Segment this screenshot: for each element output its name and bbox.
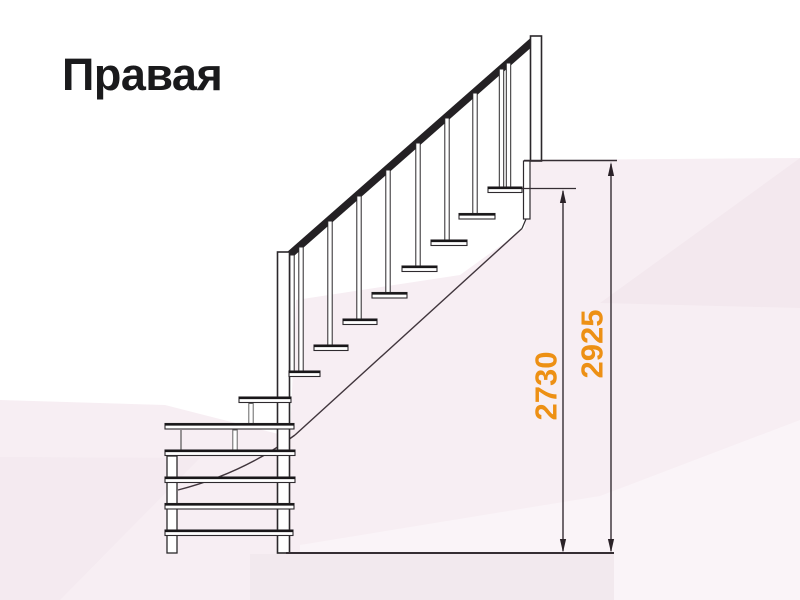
top-landing-post <box>531 36 542 161</box>
dimension-value-2730: 2730 <box>531 352 562 421</box>
page-title: Правая <box>62 52 222 97</box>
handrail <box>286 40 534 258</box>
landing-edge <box>522 161 530 229</box>
background-facets <box>0 158 800 600</box>
dimension-value-2925: 2925 <box>577 310 608 379</box>
page: Правая 2730 2925 <box>0 0 800 600</box>
